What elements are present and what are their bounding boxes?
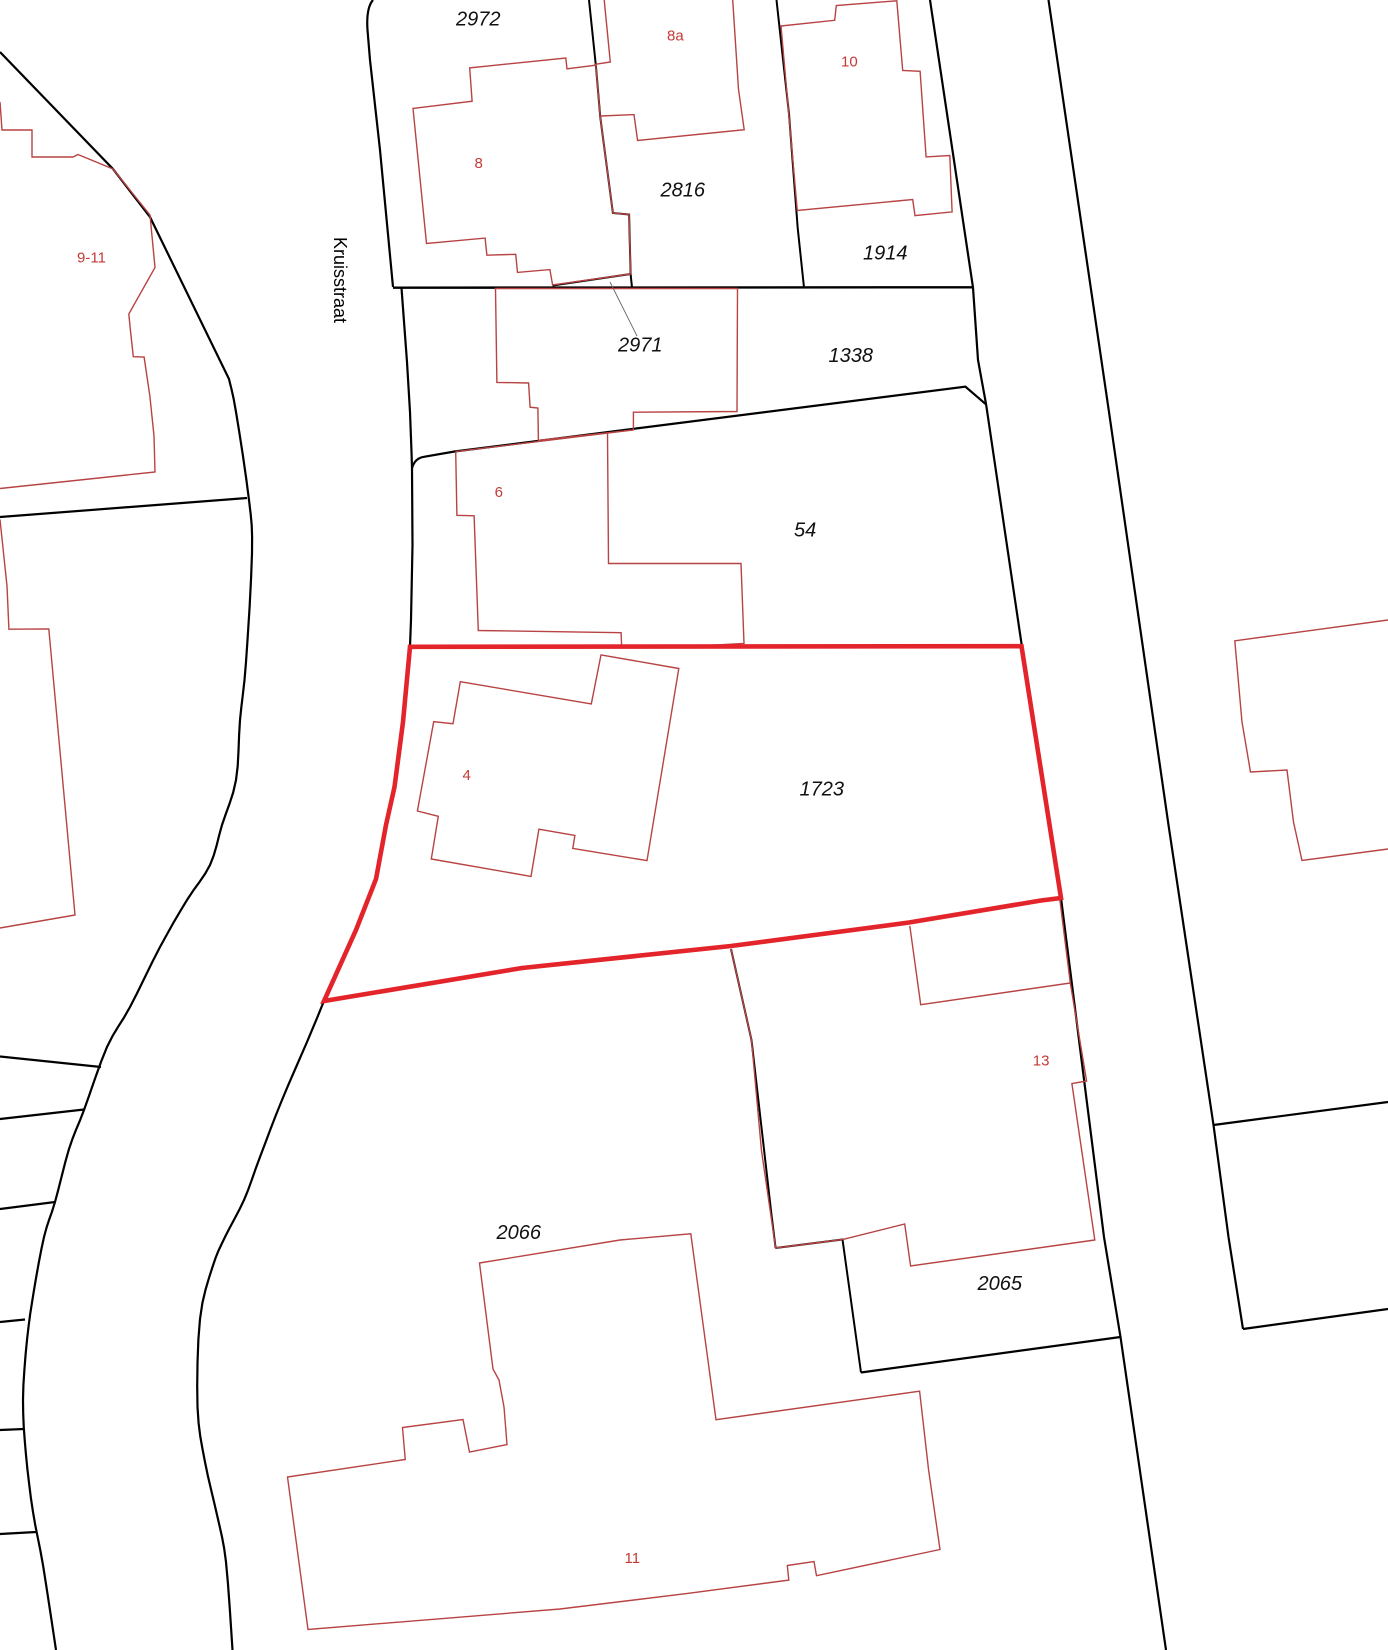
svg-text:11: 11: [625, 1550, 641, 1567]
svg-text:2971: 2971: [617, 335, 663, 357]
svg-text:2972: 2972: [455, 9, 501, 31]
svg-text:4: 4: [463, 767, 471, 784]
svg-text:1338: 1338: [829, 345, 874, 367]
svg-text:2816: 2816: [660, 180, 706, 202]
svg-text:8: 8: [475, 155, 483, 172]
svg-text:10: 10: [841, 53, 858, 70]
svg-text:8a: 8a: [667, 27, 684, 44]
svg-text:1723: 1723: [800, 778, 845, 800]
svg-text:2065: 2065: [977, 1273, 1023, 1295]
svg-text:54: 54: [794, 520, 816, 542]
svg-text:2066: 2066: [496, 1222, 542, 1244]
svg-text:1914: 1914: [863, 243, 908, 265]
svg-text:6: 6: [495, 484, 503, 501]
svg-text:13: 13: [1033, 1052, 1050, 1069]
svg-text:9-11: 9-11: [77, 250, 106, 267]
svg-text:Kruisstraat: Kruisstraat: [330, 237, 350, 323]
